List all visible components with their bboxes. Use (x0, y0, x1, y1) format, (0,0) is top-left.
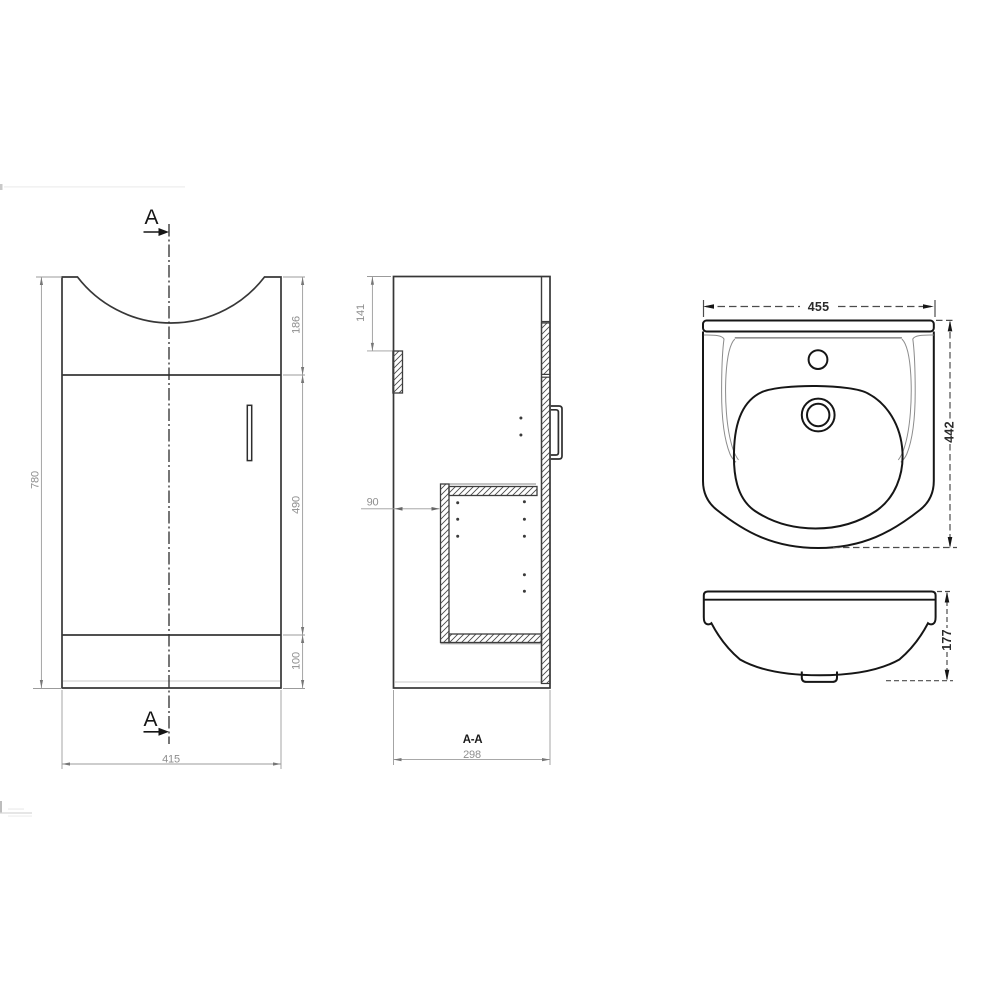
svg-text:90: 90 (367, 497, 379, 509)
svg-text:A: A (144, 206, 158, 229)
svg-text:177: 177 (940, 629, 954, 650)
svg-text:141: 141 (355, 304, 367, 322)
svg-text:A-A: A-A (463, 734, 483, 746)
svg-text:780: 780 (30, 471, 42, 489)
svg-text:298: 298 (463, 749, 481, 761)
svg-text:186: 186 (291, 316, 303, 334)
svg-text:100: 100 (291, 652, 303, 670)
svg-text:442: 442 (943, 421, 957, 442)
svg-text:490: 490 (291, 496, 303, 514)
svg-text:A: A (143, 708, 157, 731)
svg-text:415: 415 (162, 754, 180, 766)
svg-text:455: 455 (808, 300, 829, 314)
